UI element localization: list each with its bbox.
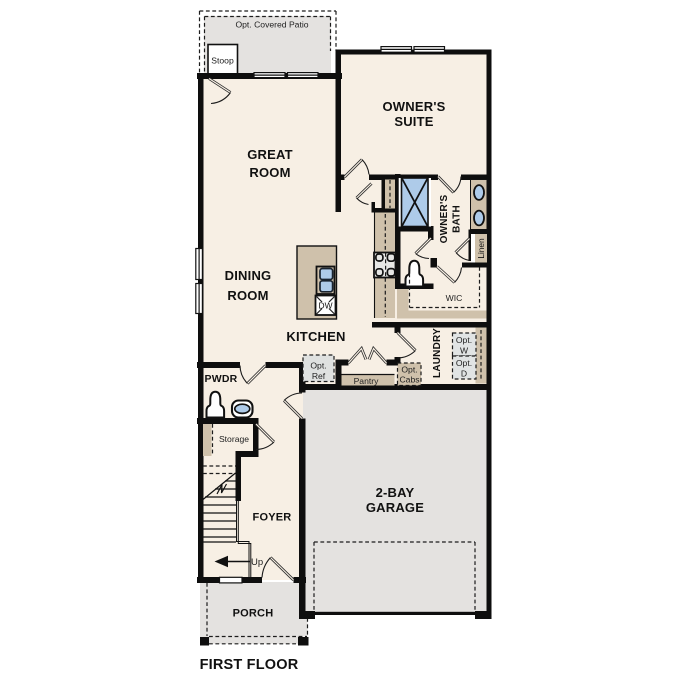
svg-text:SUITE: SUITE (394, 114, 433, 129)
svg-text:Opt. Covered Patio: Opt. Covered Patio (235, 19, 308, 29)
svg-text:GARAGE: GARAGE (366, 500, 424, 515)
svg-text:DINING: DINING (225, 268, 272, 283)
svg-text:KITCHEN: KITCHEN (286, 329, 345, 344)
svg-text:LAUNDRY: LAUNDRY (432, 328, 443, 378)
svg-text:Pantry: Pantry (354, 376, 380, 386)
svg-text:WIC: WIC (446, 293, 463, 303)
svg-text:Up: Up (251, 557, 263, 568)
svg-text:PWDR: PWDR (205, 373, 238, 385)
svg-text:Ref: Ref (312, 371, 326, 381)
svg-text:OWNER'S: OWNER'S (383, 99, 446, 114)
svg-text:ROOM: ROOM (227, 288, 268, 303)
svg-text:BATH: BATH (452, 205, 463, 233)
svg-text:Opt.: Opt. (456, 358, 472, 368)
svg-text:PORCH: PORCH (233, 608, 274, 620)
svg-text:D: D (461, 369, 467, 379)
svg-text:OWNER'S: OWNER'S (439, 194, 450, 243)
svg-text:Storage: Storage (219, 434, 249, 444)
svg-text:Cabs: Cabs (399, 375, 419, 385)
svg-text:DW: DW (319, 301, 333, 311)
svg-text:Opt.: Opt. (401, 365, 417, 375)
svg-text:Opt.: Opt. (310, 361, 326, 371)
svg-text:2-BAY: 2-BAY (376, 485, 415, 500)
svg-text:Stoop: Stoop (211, 56, 234, 66)
svg-text:GREAT: GREAT (247, 147, 293, 162)
svg-text:FOYER: FOYER (253, 512, 292, 524)
svg-text:Linen: Linen (476, 238, 486, 259)
svg-text:W: W (460, 346, 469, 356)
svg-text:Opt.: Opt. (456, 335, 472, 345)
svg-text:ROOM: ROOM (249, 165, 290, 180)
svg-text:FIRST FLOOR: FIRST FLOOR (200, 657, 299, 673)
